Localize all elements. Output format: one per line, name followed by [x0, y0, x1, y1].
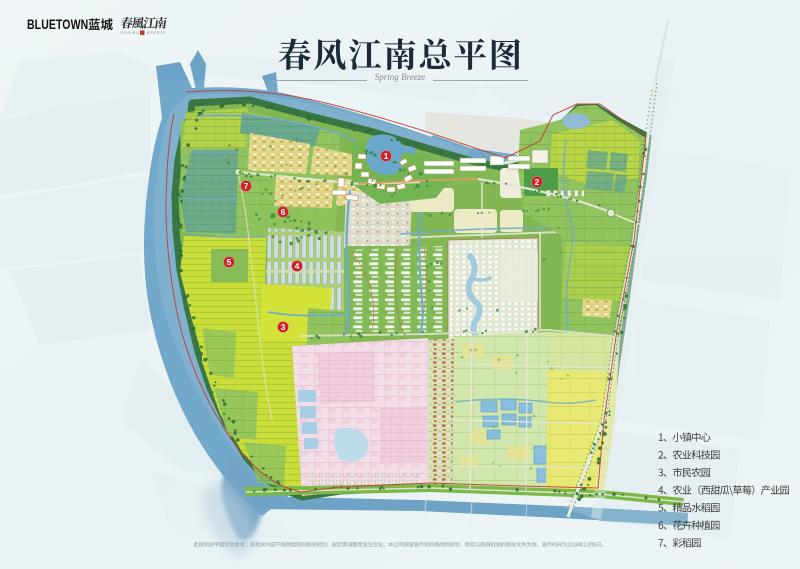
- svg-text:7: 7: [244, 181, 249, 191]
- svg-text:6: 6: [281, 207, 286, 217]
- svg-text:1: 1: [384, 151, 389, 161]
- svg-text:3: 3: [281, 322, 286, 332]
- svg-text:2: 2: [535, 177, 540, 187]
- svg-text:5: 5: [227, 257, 232, 267]
- svg-text:4: 4: [295, 261, 300, 271]
